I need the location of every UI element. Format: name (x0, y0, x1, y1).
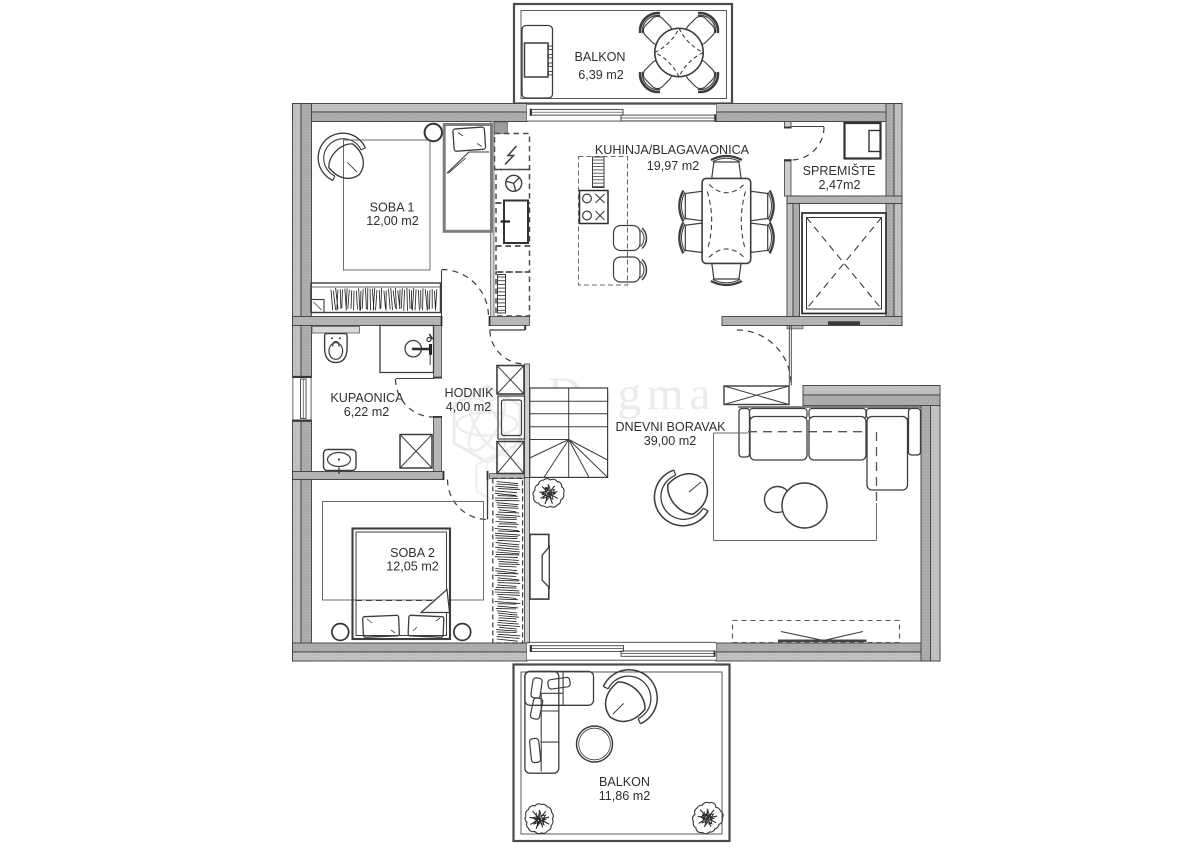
svg-text:2,47m2: 2,47m2 (818, 178, 860, 192)
svg-text:12,00 m2: 12,00 m2 (366, 214, 419, 228)
svg-text:KUHINJA/BLAGAVAONICA: KUHINJA/BLAGAVAONICA (595, 143, 750, 157)
svg-text:39,00 m2: 39,00 m2 (644, 434, 697, 448)
svg-text:SOBA 1: SOBA 1 (370, 201, 415, 215)
svg-text:DNEVNI BORAVAK: DNEVNI BORAVAK (615, 420, 726, 434)
svg-text:6,22 m2: 6,22 m2 (344, 405, 390, 419)
svg-text:BALKON: BALKON (599, 775, 650, 789)
svg-text:6,39 m2: 6,39 m2 (578, 68, 624, 82)
svg-text:19,97 m2: 19,97 m2 (647, 159, 700, 173)
svg-text:SOBA 2: SOBA 2 (390, 546, 435, 560)
svg-text:SPREMIŠTE: SPREMIŠTE (803, 163, 876, 178)
svg-text:HODNIK: HODNIK (445, 386, 495, 400)
svg-text:BALKON: BALKON (574, 50, 625, 64)
svg-text:4,00 m2: 4,00 m2 (446, 400, 492, 414)
svg-text:12,05 m2: 12,05 m2 (386, 560, 439, 574)
svg-text:11,86 m2: 11,86 m2 (599, 789, 651, 803)
svg-text:KUPAONICA: KUPAONICA (330, 391, 404, 405)
